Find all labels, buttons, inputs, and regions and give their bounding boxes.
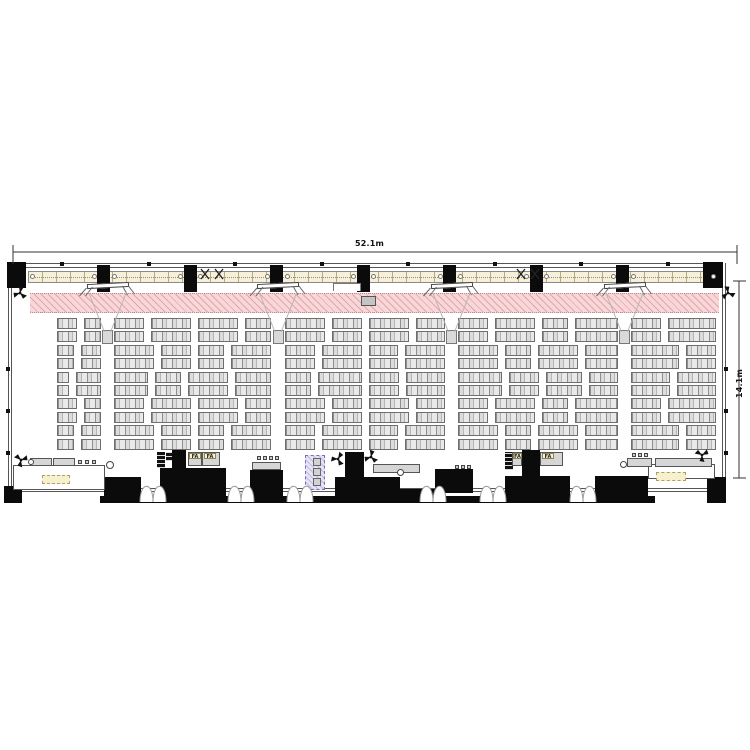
line bbox=[89, 292, 105, 332]
path bbox=[433, 486, 446, 502]
path bbox=[287, 486, 300, 502]
fan-speaker-icon bbox=[11, 284, 30, 303]
line bbox=[299, 286, 305, 294]
path bbox=[583, 486, 596, 502]
linework-layer bbox=[0, 0, 750, 750]
fan-hub bbox=[337, 458, 340, 461]
line bbox=[123, 286, 128, 295]
path bbox=[300, 486, 313, 502]
path bbox=[241, 486, 254, 502]
line bbox=[606, 292, 622, 332]
line bbox=[640, 286, 645, 295]
fan-speaker-icon bbox=[13, 451, 30, 469]
line bbox=[129, 286, 135, 294]
line bbox=[628, 292, 644, 332]
path bbox=[140, 486, 153, 502]
fan-speaker-icon bbox=[362, 448, 379, 466]
line bbox=[293, 286, 298, 295]
line bbox=[259, 292, 275, 332]
line bbox=[80, 288, 87, 296]
fan-speaker-icon bbox=[331, 452, 344, 467]
fan-speaker-icon bbox=[692, 445, 710, 464]
path bbox=[493, 486, 506, 502]
line bbox=[111, 292, 127, 332]
path bbox=[570, 486, 583, 502]
line bbox=[597, 288, 604, 296]
line bbox=[473, 286, 479, 294]
line bbox=[250, 288, 257, 296]
path bbox=[420, 486, 433, 502]
line bbox=[646, 286, 652, 294]
line bbox=[467, 286, 472, 295]
path bbox=[480, 486, 493, 502]
path bbox=[153, 486, 166, 502]
floor-plan-canvas: 52.1m 14.1m FAFAFAFA bbox=[0, 0, 750, 750]
path bbox=[228, 486, 241, 502]
line bbox=[433, 292, 449, 332]
line bbox=[455, 292, 471, 332]
line bbox=[281, 292, 297, 332]
fan-speaker-icon bbox=[718, 284, 737, 303]
line bbox=[424, 288, 431, 296]
